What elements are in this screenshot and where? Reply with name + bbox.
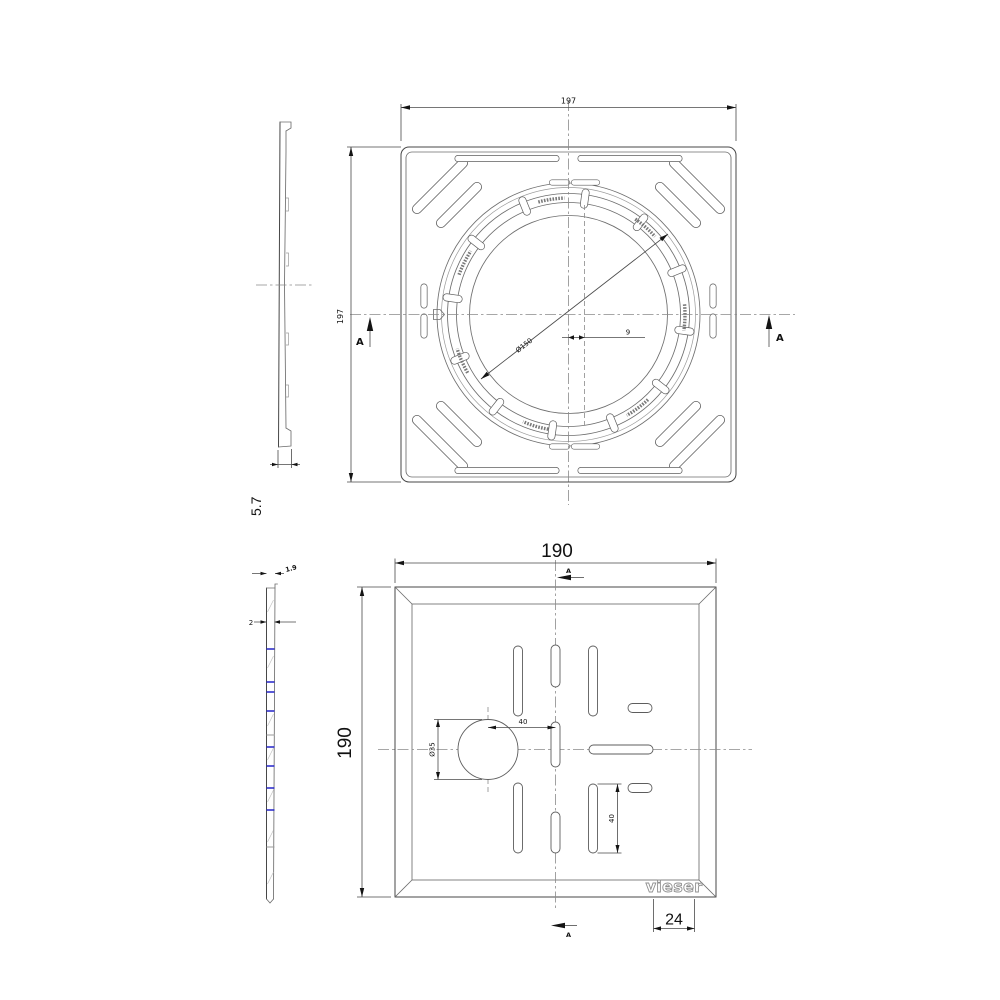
dim-section-offset: 9 xyxy=(562,329,645,340)
lid-side-profile-view: 1.9 2 xyxy=(249,563,298,903)
profile-outer-edge xyxy=(279,122,281,447)
section-label-bottom: A xyxy=(566,931,571,939)
profile-top-flange xyxy=(280,122,291,131)
dim-ring-diameter: Ø150 xyxy=(481,234,668,379)
section-label-right: A xyxy=(776,333,784,344)
section-marker-left: A xyxy=(356,317,373,348)
profile-clips xyxy=(286,198,289,397)
dim-frame-thickness: 5.7 xyxy=(248,449,300,516)
frame-thickness-label: 5.7 xyxy=(248,496,264,516)
section-marker-bottom: A xyxy=(551,923,577,939)
lid-top-view: Ø35 40 40 190 190 xyxy=(335,541,752,939)
frame-side-profile-view: 5.7 xyxy=(248,122,314,516)
dim-logo-offset: 24 xyxy=(654,899,695,932)
vieser-logo: vieser xyxy=(646,877,703,896)
section-label-left: A xyxy=(356,337,364,348)
lid-profile-right-edge xyxy=(274,588,276,899)
profile-bottom-flange xyxy=(279,428,292,447)
ring-diameter-label: Ø150 xyxy=(514,337,534,355)
section-marker-right: A xyxy=(766,315,784,347)
ring-engravings xyxy=(456,198,689,433)
frame-top-view: Ø150 9 197 197 A xyxy=(336,97,795,506)
hole-offset-label: 40 xyxy=(519,718,528,726)
dim-lid-edge-thickness: 1.9 xyxy=(252,563,298,575)
section-marker-top: A xyxy=(557,567,584,580)
drawing-svg: 5.7 xyxy=(0,0,1000,1000)
lid-slots xyxy=(514,645,654,853)
section-offset-label: 9 xyxy=(626,329,630,337)
lid-width-label: 190 xyxy=(541,541,573,562)
lid-profile-top-cap xyxy=(267,584,278,588)
profile-inner-edge xyxy=(285,131,287,428)
lid-profile-bottom-tip xyxy=(267,899,274,903)
slot-length-label: 40 xyxy=(608,814,616,823)
lid-plate-thickness-label: 2 xyxy=(249,619,253,627)
frame-height-label: 197 xyxy=(336,309,345,324)
lid-edge-thickness-label: 1.9 xyxy=(285,563,299,574)
technical-drawing-canvas: 5.7 xyxy=(0,0,1000,1000)
dim-lid-height: 190 xyxy=(335,587,391,897)
lid-height-label: 190 xyxy=(335,727,356,759)
hole-diameter-label: Ø35 xyxy=(429,742,437,756)
dim-lid-plate-thickness: 2 xyxy=(249,619,296,627)
lid-hole-circle xyxy=(458,720,518,780)
logo-offset-label: 24 xyxy=(665,912,683,929)
section-label-top: A xyxy=(566,567,571,575)
frame-width-label: 197 xyxy=(561,97,576,106)
dim-slot-length: 40 xyxy=(598,784,622,853)
lid-profile-hatching xyxy=(268,600,274,884)
